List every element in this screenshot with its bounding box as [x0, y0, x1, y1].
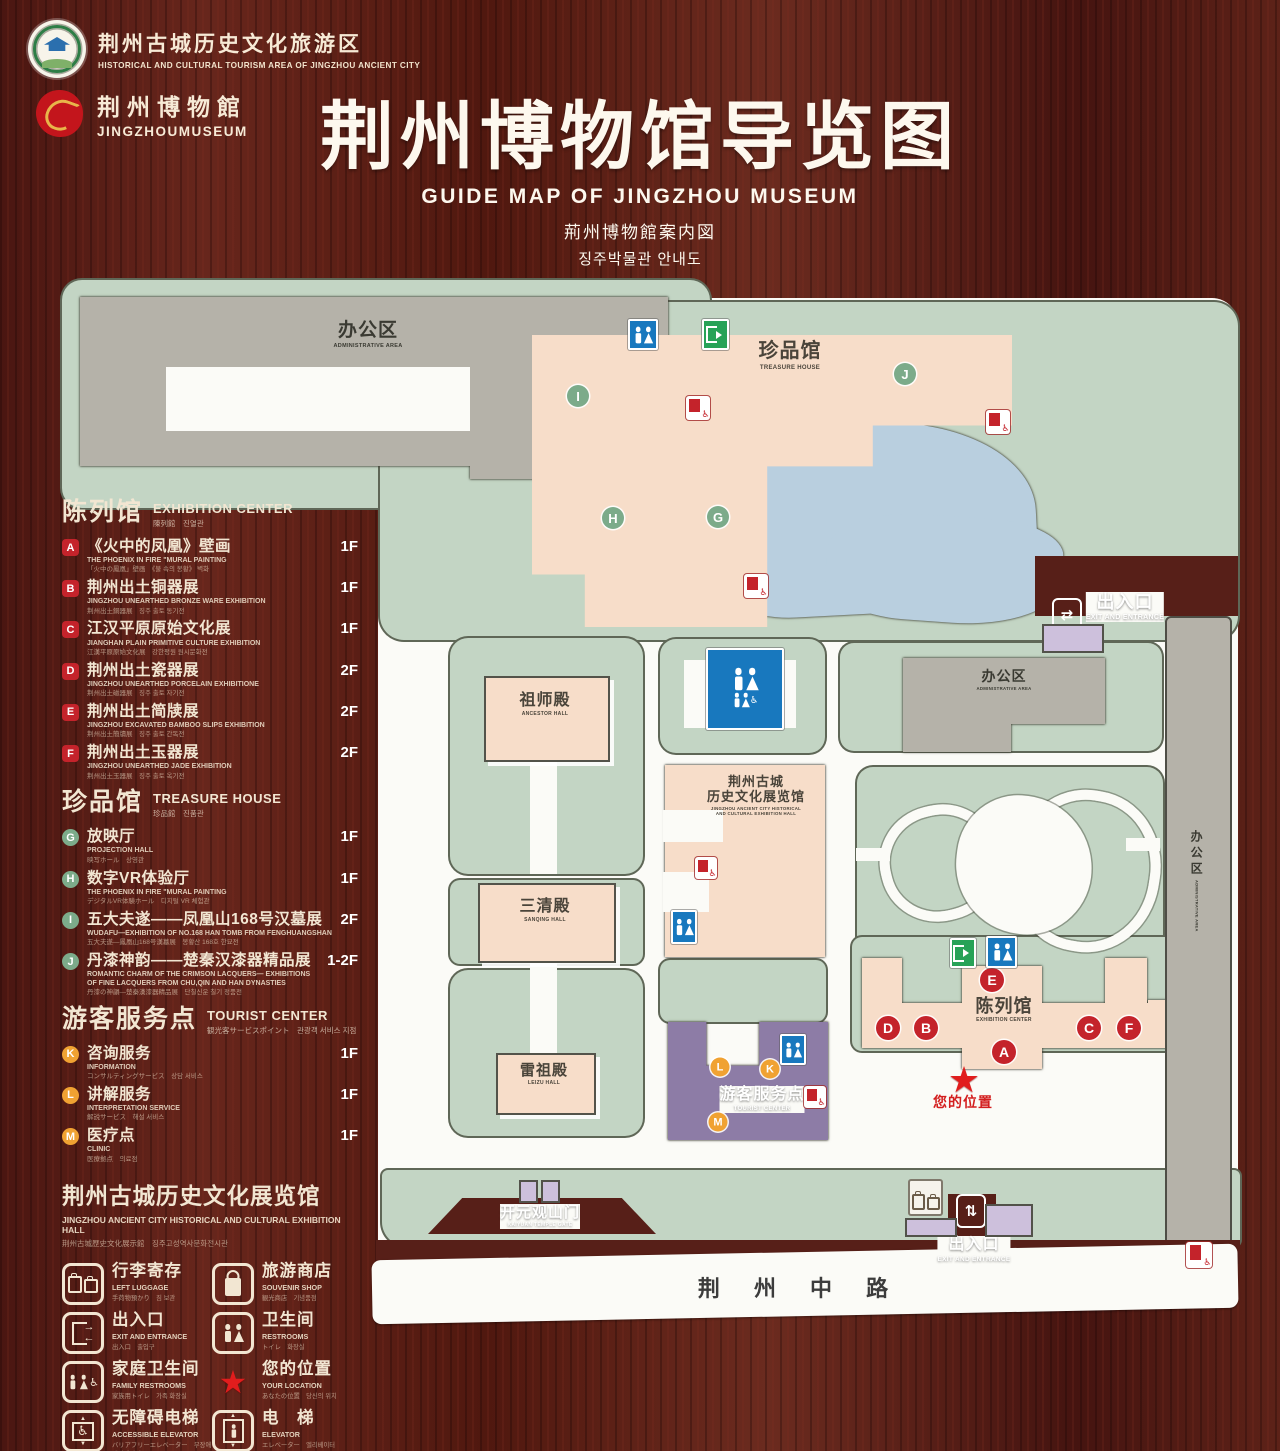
section-title-side: TREASURE HOUSE珍品館 진품관: [153, 790, 281, 819]
legend-section-exhibition-center: 陈列馆EXHIBITION CENTER陳列館 진열관A《火中的凤凰》壁画THE…: [62, 500, 358, 780]
whl: ♿: [708, 870, 716, 879]
restrooms-icon: [212, 1312, 254, 1354]
legend-item-text: 咨询服务INFORMATIONコンサルティングサービス 상담 서비스: [87, 1045, 332, 1081]
facility-zh: 行李寄存: [112, 1263, 182, 1280]
map-icon-star: ★: [946, 1062, 982, 1098]
legend-item-zh: 讲解服务: [87, 1086, 332, 1103]
span: ←: [84, 1333, 95, 1345]
legend-item-floor: 1F: [340, 579, 358, 596]
map-icon-acc: ♿: [986, 410, 1010, 434]
legend-item-zh: 五大夫遂——凤凰山168号汉墓展: [87, 911, 332, 928]
legend-item-sub: 荆州出土銅器展 징주 출토 동기전: [87, 608, 332, 616]
legend-item-en: THE PHOENIX IN FIRE "MURAL PAINTING: [87, 557, 332, 565]
legend-badge-F: F: [62, 745, 79, 762]
facility-sub: エレベーター 엘리베이터: [262, 1440, 335, 1449]
legend-item-floor: 2F: [340, 744, 358, 761]
legend-item-text: 荆州出土简牍展JINGZHOU EXCAVATED BAMBOO SLIPS E…: [87, 703, 332, 739]
map-icon-exitg: [950, 940, 976, 966]
legend-item-zh: 放映厅: [87, 828, 332, 845]
blk: [1190, 1245, 1201, 1260]
legend-item-en: JINGZHOU UNEARTHED PORCELAIN EXHIBITIONE: [87, 681, 332, 689]
guide-map-poster: 荆州古城历史文化旅游区 HISTORICAL AND CULTURAL TOUR…: [0, 0, 1280, 1451]
legend-item-sub: 丹漆の神韻—楚秦漢漆器精品展 단칠신운 칠기 정품전: [87, 989, 319, 997]
section-title-en: EXHIBITION CENTER: [153, 502, 293, 515]
p: [685, 919, 693, 935]
path-ancestor: [530, 752, 557, 874]
museum-name-zh: 荆州博物館: [97, 88, 248, 122]
tourism-area-emblem-icon: [28, 20, 86, 78]
map-icon-exitg: [702, 321, 729, 348]
building-admin-east-annex: [903, 724, 1011, 752]
gate-structure: [985, 1204, 1033, 1237]
p: [741, 692, 748, 706]
legend-item-text: 《火中的凤凰》壁画THE PHOENIX IN FIRE "MURAL PAIN…: [87, 538, 332, 574]
wcrow: [674, 919, 694, 935]
family-restroom-icon: ♿: [706, 648, 784, 730]
accessible-elevator-icon: ♿: [686, 396, 710, 420]
tri: [716, 331, 726, 339]
facility-en: SOUVENIR SHOP: [262, 1283, 332, 1292]
exit-icon: [950, 938, 976, 968]
facility-zh: 电 梯: [262, 1410, 335, 1427]
legend-badge-B: B: [62, 580, 79, 597]
map-marker-B: B: [914, 1016, 938, 1040]
legend-item-text: 丹漆神韵——楚秦汉漆器精品展ROMANTIC CHARM OF THE CRIM…: [87, 952, 319, 997]
lcol: ▲▼: [223, 1413, 244, 1449]
facility-sub: トイレ 화장실: [262, 1342, 315, 1351]
your-location-star-icon: ★: [948, 1062, 980, 1098]
legend-item-en: INFORMATION: [87, 1064, 332, 1072]
legend-item-en: ROMANTIC CHARM OF THE CRIMSON LACQUERS— …: [87, 971, 319, 988]
facility-restrooms: 卫生间RESTROOMSトイレ 화장실: [212, 1312, 358, 1354]
legend-item-sub: 荆州出土磁器展 징주 출토 자기전: [87, 690, 332, 698]
wcrow: [991, 943, 1012, 960]
legend-item-zh: 医疗点: [87, 1127, 332, 1144]
facility-text: 您的位置YOUR LOCATIONあなたの位置 당신의 위치: [262, 1361, 337, 1399]
facility-souvenir-shop: 旅游商店SOUVENIR SHOP観光商店 기념품점: [212, 1263, 358, 1305]
left-luggage-icon: [908, 1179, 943, 1216]
restroom-icon: [671, 910, 697, 944]
legend-item-en: CLINIC: [87, 1146, 332, 1154]
facility-text: 电 梯ELEVATORエレベーター 엘리베이터: [262, 1410, 335, 1448]
legend-item-A: A《火中的凤凰》壁画THE PHOENIX IN FIRE "MURAL PAI…: [62, 538, 358, 574]
legend-badge-A: A: [62, 539, 79, 556]
accessible-elevator-icon: ♿: [744, 574, 768, 598]
p: [784, 1042, 791, 1057]
whl-c: ♿: [89, 1376, 99, 1389]
museum-emblem-icon: [36, 90, 83, 137]
facility-text: 出入口EXIT AND ENTRANCE出入口 출입구: [112, 1312, 187, 1350]
accessible-elevator-icon: ♿: [1186, 1242, 1212, 1268]
gate-structure: [905, 1218, 957, 1237]
legend-item-zh: 江汉平原原始文化展: [87, 620, 332, 637]
legend-item-zh: 荆州出土玉器展: [87, 744, 332, 761]
section-title-zh: 游客服务点: [62, 1007, 197, 1032]
legend-item-floor: 1F: [340, 1127, 358, 1144]
whl-c: ♿: [72, 1422, 94, 1441]
legend-badge-C: C: [62, 621, 79, 638]
facility-sub: 家族用トイレ 가족 화장실: [112, 1391, 200, 1400]
wood-wedge-gate: [428, 1198, 656, 1234]
legend-item-F: F荆州出土玉器展JINGZHOU UNEARTHED JADE EXHIBITI…: [62, 744, 358, 780]
legend-item-sub: 荆州出土簡牘展 징주 출토 간독전: [87, 731, 332, 739]
legend-item-en: JINGZHOU UNEARTHED BRONZE WARE EXHIBITIO…: [87, 598, 332, 606]
wcrow: [731, 667, 759, 690]
facility-your-location: ★您的位置YOUR LOCATIONあなたの位置 당신의 위치: [212, 1361, 358, 1403]
accessible-elevator-icon: ▲♿▼: [62, 1410, 104, 1451]
whl: ♿: [701, 411, 709, 420]
blk: [689, 399, 700, 412]
legend-item-zh: 荆州出土瓷器展: [87, 662, 332, 679]
legend-item-zh: 咨询服务: [87, 1045, 332, 1062]
legend-item-floor: 1F: [340, 870, 358, 887]
map-marker-C: C: [1077, 1016, 1101, 1040]
page-title-ko: 징주박물관 안내도: [0, 248, 1280, 269]
hall-note-zh: 荆州古城历史文化展览馆: [62, 1179, 358, 1211]
map-marker-H: H: [602, 507, 624, 529]
facility-en: ACCESSIBLE ELEVATOR: [112, 1430, 212, 1439]
legend-item-text: 讲解服务INTERPRETATION SERVICE解説サービス 해설 서비스: [87, 1086, 332, 1122]
map-icon-lug: [908, 1179, 943, 1216]
facility-en: RESTROOMS: [262, 1332, 315, 1341]
map-icon-acc: ♿: [686, 396, 710, 420]
tourism-area-logo: 荆州古城历史文化旅游区 HISTORICAL AND CULTURAL TOUR…: [28, 20, 420, 78]
courtyard-topleft: [166, 367, 470, 431]
legend-item-zh: 荆州出土铜器展: [87, 579, 332, 596]
p: [69, 1375, 76, 1389]
gate-structure: [1042, 624, 1104, 653]
section-title-side: EXHIBITION CENTER陳列館 진열관: [153, 500, 293, 529]
star: ★: [219, 1366, 248, 1398]
accessible-elevator-icon: ♿: [986, 410, 1010, 434]
facility-sub: バリアフリーエレベーター 무장애 엘리베이터: [112, 1440, 212, 1451]
legend-item-floor: 2F: [340, 911, 358, 928]
legend-item-J: J丹漆神韵——楚秦汉漆器精品展ROMANTIC CHARM OF THE CRI…: [62, 952, 358, 997]
legend-section-heading: 珍品馆TREASURE HOUSE珍品館 진품관: [62, 790, 358, 819]
legend-item-sub: 五大夫遂—鳳凰山168号漢墓展 봉황산 168호 한묘전: [87, 939, 332, 947]
facility-accessible-elevator: ▲♿▼无障碍电梯ACCESSIBLE ELEVATORバリアフリーエレベーター …: [62, 1410, 212, 1451]
legend-item-zh: 丹漆神韵——楚秦汉漆器精品展: [87, 952, 319, 969]
p: [230, 1425, 237, 1439]
legend-section-heading: 游客服务点TOURIST CENTER観光客サービスポイント 관광객 서비스 지…: [62, 1007, 358, 1036]
legend-item-sub: 解説サービス 해설 서비스: [87, 1114, 332, 1122]
facility-legend: 行李寄存LEFT LUGGAGE手荷物預かり 짐 보관旅游商店SOUVENIR …: [62, 1263, 358, 1451]
legend-badge-G: G: [62, 829, 79, 846]
museum-name-en: JINGZHOUMUSEUM: [97, 124, 248, 139]
facility-en: YOUR LOCATION: [262, 1381, 337, 1390]
legend-item-sub: 「火中の鳳凰」壁画 《불 속의 봉황》 벽화: [87, 566, 332, 574]
tourism-area-name-en: HISTORICAL AND CULTURAL TOURISM AREA OF …: [98, 61, 420, 70]
p: [223, 1324, 232, 1342]
whl: ♿: [759, 589, 767, 598]
legend-item-sub: コンサルティングサービス 상담 서비스: [87, 1073, 332, 1081]
legend-item-G: G放映厅PROJECTION HALL映写ホール 상영관1F: [62, 828, 358, 864]
map-marker-I: I: [567, 385, 589, 407]
legend-item-text: 荆州出土铜器展JINGZHOU UNEARTHED BRONZE WARE EX…: [87, 579, 332, 615]
map-marker-D: D: [876, 1016, 900, 1040]
accessible-elevator-icon: ♿: [804, 1086, 826, 1108]
your-location-icon: ★: [212, 1361, 254, 1403]
legend-item-I: I五大夫遂——凤凰山168号汉墓展WUDAFU—EXHIBITION OF NO…: [62, 911, 358, 947]
legend-badge-M: M: [62, 1128, 79, 1145]
legend-item-text: 五大夫遂——凤凰山168号汉墓展WUDAFU—EXHIBITION OF NO.…: [87, 911, 332, 947]
section-title-zh: 陈列馆: [62, 500, 143, 525]
map-marker-G: G: [707, 506, 729, 528]
larrs: →←: [84, 1322, 95, 1345]
legend-item-en: PROJECTION HALL: [87, 847, 332, 855]
p: [992, 943, 1001, 960]
map-marker-K: K: [761, 1060, 780, 1079]
section-title-side: TOURIST CENTER観光客サービスポイント 관광객 서비스 지점: [207, 1007, 356, 1036]
facility-elevator: ▲▼电 梯ELEVATORエレベーター 엘리베이터: [212, 1410, 358, 1451]
map-icon-acc: ♿: [1186, 1242, 1212, 1268]
section-title-zh: 珍品馆: [62, 790, 143, 815]
legend-item-floor: 1F: [340, 1045, 358, 1062]
facility-en: ELEVATOR: [262, 1430, 335, 1439]
legend-item-C: C江汉平原原始文化展JIANGHAN PLAIN PRIMITIVE CULTU…: [62, 620, 358, 656]
notch-jz-1: [663, 810, 723, 842]
legend-section-heading: 陈列馆EXHIBITION CENTER陳列館 진열관: [62, 500, 358, 529]
map-icon-wc: [628, 321, 658, 348]
map-icon-wcfam: ♿: [706, 650, 784, 728]
legend-badge-J: J: [62, 953, 79, 970]
tri: [963, 949, 973, 957]
facility-en: LEFT LUGGAGE: [112, 1283, 182, 1292]
span: [223, 1419, 244, 1443]
hall-note-en: JINGZHOU ANCIENT CITY HISTORICAL AND CUL…: [62, 1215, 358, 1235]
facility-zh: 出入口: [112, 1312, 187, 1329]
facility-sub: 出入口 출입구: [112, 1342, 187, 1351]
facility-zh: 您的位置: [262, 1361, 337, 1378]
blk: [989, 413, 1000, 426]
accessible-elevator-icon: ♿: [695, 857, 717, 879]
legend-item-zh: 数字VR体验厅: [87, 870, 332, 887]
map-icon-prect: [541, 1180, 560, 1203]
legend-item-sub: 医療拠点 의료점: [87, 1156, 332, 1164]
legend-item-zh: 《火中的凤凰》壁画: [87, 538, 332, 555]
facility-text: 旅游商店SOUVENIR SHOP観光商店 기념품점: [262, 1263, 332, 1301]
legend-item-text: 江汉平原原始文化展JIANGHAN PLAIN PRIMITIVE CULTUR…: [87, 620, 332, 656]
legend-item-sub: 荆州出土玉器展 징주 출토 옥기전: [87, 773, 332, 781]
legend-badge-K: K: [62, 1046, 79, 1063]
restroom-icon: [780, 1034, 806, 1065]
legend-item-H: H数字VR体验厅THE PHOENIX IN FIRE "MURAL PAINT…: [62, 870, 358, 906]
family-restrooms-icon: ♿: [62, 1361, 104, 1403]
legend-section-treasure-house: 珍品馆TREASURE HOUSE珍品館 진품관G放映厅PROJECTION H…: [62, 790, 358, 996]
legend-item-E: E荆州出土简牍展JINGZHOU EXCAVATED BAMBOO SLIPS …: [62, 703, 358, 739]
map-icon-prect: [985, 1204, 1033, 1237]
facility-family-restrooms: ♿家庭卫生间FAMILY RESTROOMS家族用トイレ 가족 화장실: [62, 1361, 212, 1403]
p: [733, 692, 740, 706]
legend-item-text: 荆州出土瓷器展JINGZHOU UNEARTHED PORCELAIN EXHI…: [87, 662, 332, 698]
lcase: [84, 1279, 98, 1293]
page-title-ja: 荊州博物館案内図: [0, 218, 1280, 243]
facility-zh: 卫生间: [262, 1312, 315, 1329]
map-icon-acc: ♿: [695, 857, 717, 879]
legend-item-text: 荆州出土玉器展JINGZHOU UNEARTHED JADE EXHIBITIO…: [87, 744, 332, 780]
museum-text: 荆州博物館 JINGZHOUMUSEUM: [97, 88, 248, 139]
section-title-en: TOURIST CENTER: [207, 1009, 356, 1022]
whl: ♿: [1001, 425, 1009, 434]
legend-item-sub: 映写ホール 상영관: [87, 857, 332, 865]
tourism-area-text: 荆州古城历史文化旅游区 HISTORICAL AND CULTURAL TOUR…: [98, 28, 420, 70]
legend-item-en: JINGZHOU EXCAVATED BAMBOO SLIPS EXHIBITI…: [87, 722, 332, 730]
wcrow: [633, 326, 653, 343]
legend-sections: 陈列馆EXHIBITION CENTER陳列館 진열관A《火中的凤凰》壁画THE…: [62, 500, 358, 1163]
legend-item-text: 数字VR体验厅THE PHOENIX IN FIRE "MURAL PAINTI…: [87, 870, 332, 906]
legend-badge-L: L: [62, 1087, 79, 1104]
legend-badge-E: E: [62, 704, 79, 721]
legend-item-L: L讲解服务INTERPRETATION SERVICE解説サービス 해설 서비스…: [62, 1086, 358, 1122]
hill-icon: [42, 59, 72, 68]
whl: ♿: [1203, 1259, 1211, 1268]
p: [234, 1324, 243, 1342]
legend-item-floor: 1F: [340, 538, 358, 555]
map-icon-acc: ♿: [804, 1086, 826, 1108]
facility-text: 卫生间RESTROOMSトイレ 화장실: [262, 1312, 315, 1350]
p: [80, 1375, 87, 1389]
legend-item-floor: 2F: [340, 662, 358, 679]
tb: ▼: [80, 1441, 86, 1447]
facility-zh: 无障碍电梯: [112, 1410, 212, 1427]
whl-c: ♿: [749, 694, 758, 705]
lcol: ▲♿▼: [72, 1416, 94, 1447]
map-icon-prect: [1042, 624, 1104, 653]
lawn-mid: [658, 958, 828, 1024]
map-icon-wc: [671, 912, 697, 942]
blk: [747, 577, 758, 590]
facility-left-luggage: 行李寄存LEFT LUGGAGE手荷物預かり 짐 보관: [62, 1263, 212, 1305]
building-ancestor-hall: [484, 676, 610, 762]
legend-item-floor: 1F: [340, 620, 358, 637]
facility-text: 无障碍电梯ACCESSIBLE ELEVATORバリアフリーエレベーター 무장애…: [112, 1410, 212, 1451]
tourism-area-name-zh: 荆州古城历史文化旅游区: [98, 28, 420, 58]
souvenir-shop-icon: [212, 1263, 254, 1305]
legend-section-tourist-center: 游客服务点TOURIST CENTER観光客サービスポイント 관광객 서비스 지…: [62, 1007, 358, 1164]
facility-en: EXIT AND ENTRANCE: [112, 1332, 187, 1341]
map-icon-prect: [905, 1218, 957, 1237]
p: [733, 667, 744, 690]
garden-path-gap-west: [856, 848, 890, 861]
map-marker-F: F: [1117, 1016, 1141, 1040]
legend-item-sub: 江漢平原原始文化展 강한평원 원시문화전: [87, 649, 332, 657]
legend-item-D: D荆州出土瓷器展JINGZHOU UNEARTHED PORCELAIN EXH…: [62, 662, 358, 698]
legend-item-text: 医疗点CLINIC医療拠点 의료점: [87, 1127, 332, 1163]
facility-sub: あなたの位置 당신의 위치: [262, 1391, 337, 1400]
p: [746, 667, 757, 690]
section-title-sub: 陳列館 진열관: [153, 518, 293, 529]
museum-logo: 荆州博物館 JINGZHOUMUSEUM: [36, 88, 248, 139]
building-sanqing-hall: [478, 883, 616, 963]
whl: ♿: [817, 1099, 825, 1108]
blk: [807, 1089, 817, 1101]
map-icon-prect: [519, 1180, 538, 1203]
facility-exit-entrance: →←出入口EXIT AND ENTRANCE出入口 출입구: [62, 1312, 212, 1354]
case: [912, 1194, 925, 1210]
legend-item-en: WUDAFU—EXHIBITION OF NO.168 HAN TOMB FRO…: [87, 930, 332, 938]
legend-item-zh: 荆州出土简牍展: [87, 703, 332, 720]
legend-item-en: INTERPRETATION SERVICE: [87, 1105, 332, 1113]
legend-item-floor: 1-2F: [327, 952, 358, 969]
section-title-sub: 観光客サービスポイント 관광객 서비스 지점: [207, 1025, 356, 1036]
facility-zh: 家庭卫生间: [112, 1361, 200, 1378]
legend-item-sub: デジタルVR体験ホール 디지털 VR 체험관: [87, 898, 332, 906]
legend-badge-I: I: [62, 912, 79, 929]
hall-note-sub: 荆州古城歴史文化展示館 징주고성역사문화전시관: [62, 1238, 358, 1249]
legend-item-M: M医疗点CLINIC医療拠点 의료점1F: [62, 1127, 358, 1163]
tb: ▼: [230, 1443, 236, 1449]
map-marker-E: E: [980, 968, 1004, 992]
map-marker-L: L: [711, 1058, 730, 1077]
legend-item-en: JIANGHAN PLAIN PRIMITIVE CULTURE EXHIBIT…: [87, 640, 332, 648]
legend-badge-D: D: [62, 663, 79, 680]
legend-item-floor: 2F: [340, 703, 358, 720]
building-admin-strip: [1165, 616, 1232, 1252]
facility-sub: 手荷物預かり 짐 보관: [112, 1293, 182, 1302]
restroom-icon: [986, 936, 1017, 968]
legend-item-B: B荆州出土铜器展JINGZHOU UNEARTHED BRONZE WARE E…: [62, 579, 358, 615]
map-icon-exitw: ⇅: [956, 1196, 986, 1226]
legend-badge-H: H: [62, 871, 79, 888]
facility-en: FAMILY RESTROOMS: [112, 1381, 200, 1390]
p: [793, 1042, 800, 1057]
gate-structure: [541, 1180, 560, 1203]
map-icon-acc: ♿: [744, 574, 768, 598]
legend-item-floor: 1F: [340, 1086, 358, 1103]
case: [927, 1197, 940, 1210]
facility-zh: 旅游商店: [262, 1263, 332, 1280]
p: [1002, 943, 1011, 960]
elevator-icon: ▲▼: [212, 1410, 254, 1451]
map-icon-wc: [781, 1036, 804, 1063]
facility-text: 家庭卫生间FAMILY RESTROOMS家族用トイレ 가족 화장실: [112, 1361, 200, 1399]
legend-panel: 陈列馆EXHIBITION CENTER陳列館 진열관A《火中的凤凰》壁画THE…: [62, 500, 358, 1451]
p: [634, 326, 642, 343]
p: [644, 326, 652, 343]
exit-entrance-icon: →←: [62, 1312, 104, 1354]
restroom-icon: [628, 319, 658, 350]
exit-icon: [702, 319, 729, 350]
legend-item-K: K咨询服务INFORMATIONコンサルティングサービス 상담 서비스1F: [62, 1045, 358, 1081]
blk: [698, 860, 708, 872]
map-icon-wc: [986, 938, 1017, 966]
exhibition-hall-note: 荆州古城历史文化展览馆 JINGZHOU ANCIENT CITY HISTOR…: [62, 1179, 358, 1249]
left-luggage-icon: [62, 1263, 104, 1305]
garden-path-gap-east: [1126, 838, 1160, 851]
legend-item-en: JINGZHOU UNEARTHED JADE EXHIBITION: [87, 763, 332, 771]
lbag: [225, 1278, 241, 1296]
path-leizu: [530, 959, 557, 1055]
map-marker-A: A: [992, 1040, 1016, 1064]
lcase: [68, 1276, 82, 1293]
section-title-en: TREASURE HOUSE: [153, 792, 281, 805]
facility-text: 行李寄存LEFT LUGGAGE手荷物預かり 짐 보관: [112, 1263, 182, 1301]
page-title-en: GUIDE MAP OF JINGZHOU MUSEUM: [0, 185, 1280, 209]
facility-sub: 観光商店 기념품점: [262, 1293, 332, 1302]
wcrow: [783, 1042, 801, 1057]
building-admin-topleft-south: [80, 431, 480, 466]
building-leizu-hall: [496, 1053, 596, 1115]
building-admin-east: [903, 658, 1105, 724]
p: [675, 919, 683, 935]
legend-item-floor: 1F: [340, 828, 358, 845]
map-marker-M: M: [709, 1113, 728, 1132]
gate-structure: [519, 1180, 538, 1203]
section-title-sub: 珍品館 진품관: [153, 808, 281, 819]
exit-entrance-icon: ⇅: [956, 1194, 986, 1228]
legend-item-en: THE PHOENIX IN FIRE "MURAL PAINTING: [87, 889, 332, 897]
map-marker-J: J: [894, 363, 916, 385]
